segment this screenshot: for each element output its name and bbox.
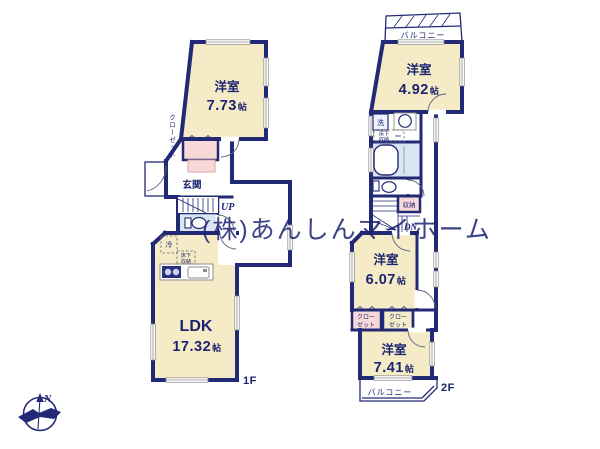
entrance-porch-1f [145, 162, 166, 196]
toilet-2f [373, 181, 396, 192]
window [374, 376, 412, 381]
balcony-top-2f: バルコニー [385, 13, 462, 42]
room-1f-bedroom-label: 洋室 [214, 79, 240, 94]
washer-label: 洗 [377, 118, 384, 127]
floor2-tag: 2F [441, 382, 455, 394]
fridge-label: 冷 [166, 240, 173, 249]
floor-storage-2f-line2: 収納 [379, 136, 389, 143]
balcony-bottom-2f: バルコニー [360, 378, 437, 401]
floor-plan-page: 洋室 7.73帖 クローゼット 玄関 UP 冷 床下 収納 LDK 17.32帖… [0, 0, 600, 449]
sink-icon [188, 267, 209, 278]
window [235, 296, 240, 330]
floor-storage-1f-line2: 収納 [181, 258, 191, 265]
window [151, 324, 156, 360]
floor2-plan: バルコニー [350, 13, 465, 401]
balcony-top-label: バルコニー [401, 31, 446, 40]
room-1f-ldk-floor [153, 233, 237, 380]
floor-plan-canvas: 洋室 7.73帖 クローゼット 玄関 UP 冷 床下 収納 LDK 17.32帖… [0, 0, 600, 449]
room-2f-bedroom-mid-label: 洋室 [373, 252, 399, 267]
entrance-label: 玄関 [182, 179, 201, 191]
room-1f-closet-floor [183, 139, 218, 160]
closet-right-line2: ゼット [389, 321, 407, 329]
sink-bowl-icon [399, 115, 412, 128]
window [434, 271, 439, 287]
company-watermark: (株)あんしんマイホーム [202, 216, 492, 244]
window [434, 252, 439, 268]
bathtub-icon [374, 145, 398, 175]
window [398, 40, 444, 45]
window [430, 342, 435, 366]
window [434, 118, 439, 142]
room-2f-bedroom-small-floor [371, 42, 462, 112]
window [460, 58, 465, 86]
room-ldk-label: LDK [180, 318, 213, 335]
closet-right-line1: クロー [389, 314, 407, 321]
shelf-1f [188, 160, 215, 172]
floor1-plan: 洋室 7.73帖 クローゼット 玄関 UP 冷 床下 収納 LDK 17.32帖… [145, 40, 292, 387]
floor1-tag: 1F [243, 375, 257, 387]
closet-1f-label: クローゼット [168, 114, 176, 159]
window [264, 58, 269, 86]
window [350, 252, 355, 282]
room-2f-bedroom-small-label: 洋室 [406, 62, 432, 77]
closet-left-line2: ゼット [357, 321, 375, 329]
compass-north-label: N [43, 394, 52, 405]
window [369, 148, 374, 172]
balcony-bottom-label: バルコニー [368, 388, 413, 397]
closet-left-line1: クロー [357, 314, 375, 321]
stairs-1f [178, 197, 218, 213]
compass-north-icon: N [18, 393, 61, 431]
storage-2f-label: 収納 [403, 200, 416, 209]
floor-storage-1f-line1: 床下 [181, 252, 191, 259]
window [206, 40, 250, 45]
window [166, 378, 208, 383]
stairs-up-label: UP [221, 202, 235, 213]
room-2f-bedroom-large-label: 洋室 [381, 342, 407, 357]
window [264, 98, 269, 128]
